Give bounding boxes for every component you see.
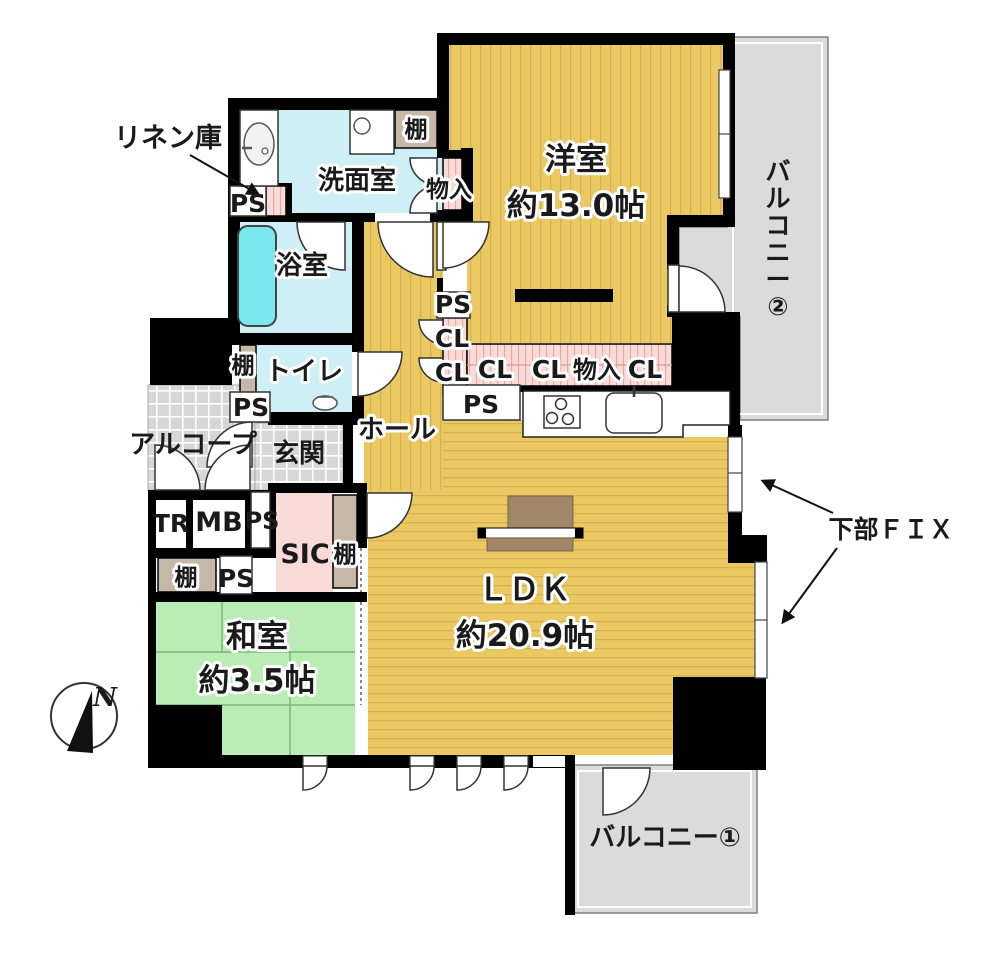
entrance-label: 玄関: [273, 438, 325, 469]
cl-4-label: CL: [532, 355, 566, 384]
linen-closet[interactable]: [266, 186, 286, 216]
kitchen-counter: [523, 385, 730, 437]
ps-5-label: PS: [245, 507, 280, 535]
ps-4-label: PS: [463, 390, 499, 419]
ps-6-label: PS: [218, 564, 254, 593]
sic-label: SIC: [280, 539, 329, 570]
ldk-label: ＬＤＫ: [478, 572, 571, 608]
cl-2-label: CL: [435, 358, 469, 387]
shelf-toilet-label: 棚: [232, 353, 255, 379]
ps-2-label: PS: [233, 393, 269, 422]
bath-label: 浴室: [276, 250, 328, 281]
storage-2-label: 物入: [573, 356, 621, 384]
toilet-label: トイレ: [265, 357, 343, 387]
lower-fix-window-1: [728, 437, 742, 512]
washing-machine: [350, 110, 394, 154]
balcony-1-label: バルコニー①: [589, 823, 741, 853]
linen-label: リネン庫: [114, 123, 222, 154]
alcove-label: アルコープ: [129, 430, 258, 460]
cl-3-label: CL: [478, 355, 512, 384]
toilet-bowl: [313, 396, 337, 410]
ldk-size-label: 約20.9帖: [456, 618, 595, 654]
vanity-sink: [240, 110, 278, 186]
western-size-label: 約13.0帖: [507, 188, 646, 224]
ldk-window-swing-2: [410, 766, 434, 790]
lower-fix-arrows: [763, 481, 837, 622]
washroom-label: 洗面室: [318, 165, 396, 196]
balcony-2-label: バルコニー②: [765, 157, 790, 321]
ldk-window-swing-3: [457, 766, 481, 790]
cl-5-label: CL: [628, 355, 662, 384]
ldk-window-swing-1: [303, 766, 327, 790]
floorplan-canvas: リネン庫洗面室棚物入PS浴室棚トイレPSアルコープ玄関ホールPSCLCLCLCL…: [0, 0, 1000, 962]
balcony-2-door-leaf: [668, 265, 679, 312]
cl-1-label: CL: [435, 324, 469, 353]
hall-label: ホール: [358, 415, 436, 445]
shelf-sic-label: 棚: [334, 542, 357, 568]
bathtub: [238, 226, 276, 326]
kitchen-sink: [606, 393, 662, 433]
shelf-washitsu-label: 棚: [175, 565, 198, 591]
north-label: N: [92, 683, 118, 713]
storage-1-label: 物入: [426, 176, 472, 203]
japanese-label: 和室: [226, 619, 288, 655]
tr-label: TR: [153, 509, 189, 538]
japanese-size-label: 約3.5帖: [199, 663, 316, 699]
ldk-window-swing-4: [504, 766, 528, 790]
ps-1-label: PS: [230, 189, 266, 218]
ps-3-label: PS: [435, 290, 471, 319]
mb-label: MB: [195, 507, 242, 538]
fix-label: 下部ＦＩＸ: [828, 515, 953, 544]
floorplan: リネン庫洗面室棚物入PS浴室棚トイレPSアルコープ玄関ホールPSCLCLCLCL…: [0, 0, 1000, 962]
western-label: 洋室: [545, 142, 607, 178]
shelf-top-label: 棚: [405, 117, 428, 143]
